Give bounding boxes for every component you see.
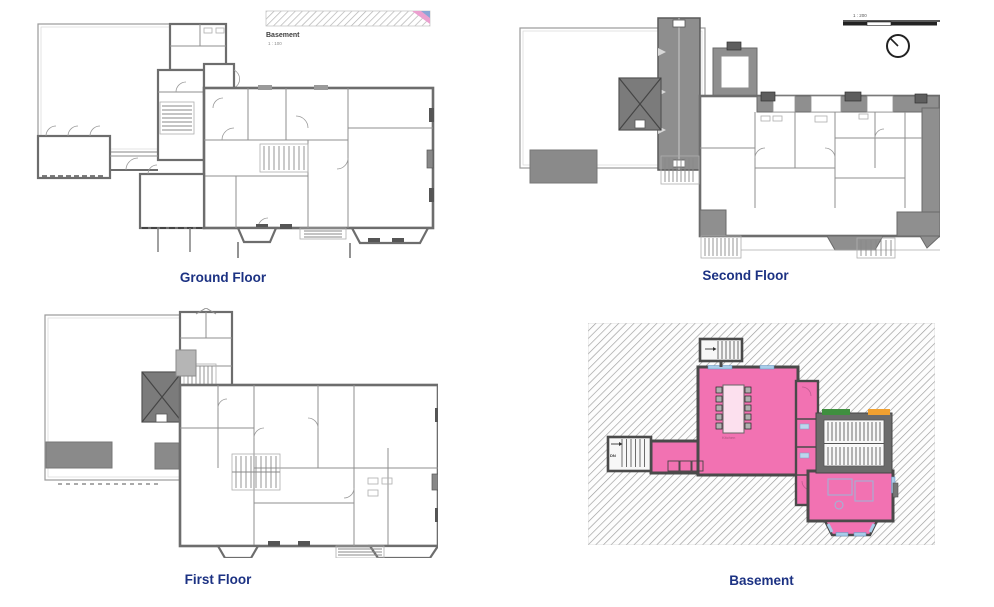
legend-scale: 1 : 100 [268,41,282,46]
basement-figure: Kitchen DN [588,323,935,588]
caption-second-floor: Second Floor [533,268,958,283]
orange-accent [868,409,890,415]
tower-roof [658,18,700,170]
hip-roof [619,78,661,130]
hip-roof [142,372,182,422]
north-arrow-icon [887,35,909,57]
dn-label: DN [610,453,616,458]
kitchen-table [716,385,751,433]
ground-floor-plan-drawing: Basement 1 : 100 [8,8,438,258]
second-floor-plan-drawing: 1 : 200 [515,8,940,260]
first-floor-plan-drawing [18,308,438,558]
kitchen-room [698,367,798,475]
caption-ground-floor: Ground Floor [8,270,438,285]
scale-bar: 1 : 200 [843,13,940,26]
ground-floor-figure: Basement 1 : 100 [8,8,438,285]
second-floor-figure: 1 : 200 [515,8,940,283]
caption-first-floor: First Floor [8,572,428,587]
caption-basement: Basement [588,573,935,588]
first-floor-figure: First Floor [18,308,438,587]
legend-title: Basement [266,32,300,39]
basement-entry-stair: DN [608,437,651,471]
green-accent [822,409,850,415]
basement-plan-drawing: Kitchen DN [588,323,935,545]
kitchen-label: Kitchen [722,435,735,440]
scale-label: 1 : 200 [853,13,867,18]
basement-main-stair [816,409,892,473]
floorplans-page: Basement 1 : 100 [0,0,994,607]
legend-block: Basement 1 : 100 [266,11,430,46]
